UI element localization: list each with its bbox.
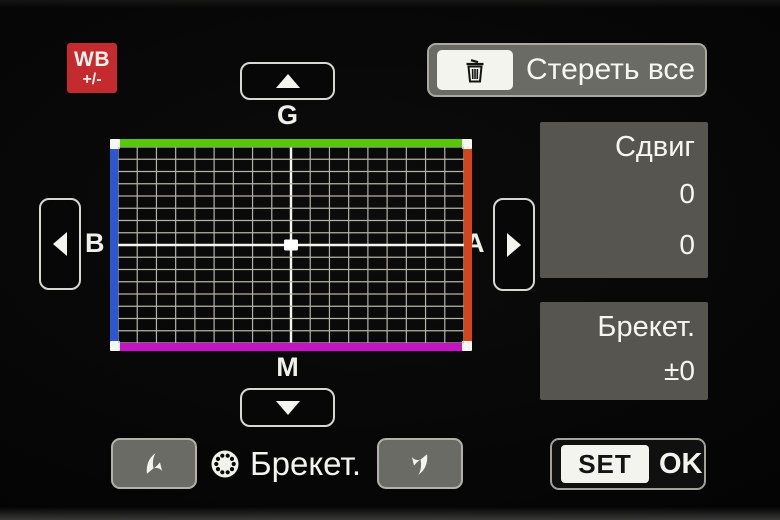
grid-edge-magenta xyxy=(119,343,463,351)
wb-correction-badge: WB +/- xyxy=(67,43,117,93)
shift-up-button[interactable] xyxy=(240,62,335,100)
shift-value-magenta-green: 0 xyxy=(553,219,695,270)
trash-key-pill xyxy=(437,50,513,90)
shift-down-button[interactable] xyxy=(240,388,335,427)
bracket-panel-title: Брекет. xyxy=(553,306,695,348)
bracket-panel: Брекет. ±0 xyxy=(540,302,708,400)
grid-edge-green xyxy=(119,139,463,147)
erase-all-button[interactable]: Стереть все xyxy=(427,43,707,97)
wb-badge-plusminus: +/- xyxy=(82,72,101,88)
shift-value-blue-amber: 0 xyxy=(553,168,695,219)
curved-arrow-right-icon xyxy=(407,451,433,477)
bracket-adjust-left-button[interactable] xyxy=(111,438,197,489)
erase-all-label: Стереть все xyxy=(526,53,695,87)
right-triangle-icon xyxy=(507,233,521,257)
ok-label: OK xyxy=(659,448,703,481)
set-key-badge: SET xyxy=(561,445,649,483)
quick-control-dial-icon xyxy=(210,449,240,479)
wb-badge-text: WB xyxy=(74,49,110,70)
bracket-panel-value: ±0 xyxy=(553,348,695,394)
axis-label-blue: B xyxy=(85,228,105,259)
wb-shift-bracket-screen: WB +/- Стереть все G M B A xyxy=(0,0,780,520)
shift-right-button[interactable] xyxy=(493,198,535,291)
axis-label-magenta: M xyxy=(240,352,335,383)
left-triangle-icon xyxy=(53,232,67,256)
shift-panel: Сдвиг 0 0 xyxy=(540,122,708,278)
down-triangle-icon xyxy=(276,401,300,415)
shift-left-button[interactable] xyxy=(39,198,81,290)
grid-edge-amber xyxy=(464,148,472,342)
wb-grid-lines xyxy=(118,147,464,343)
footer-bracket-label: Брекет. xyxy=(250,445,361,483)
curved-arrow-left-icon xyxy=(141,451,167,477)
axis-label-green: G xyxy=(240,100,335,131)
shift-panel-title: Сдвиг xyxy=(553,126,695,168)
up-triangle-icon xyxy=(276,74,300,88)
grid-edge-blue xyxy=(110,148,118,342)
bracket-adjust-right-button[interactable] xyxy=(377,438,463,489)
trash-icon xyxy=(463,57,487,84)
wb-shift-grid xyxy=(110,139,472,351)
set-ok-button[interactable]: SET OK xyxy=(550,438,706,490)
